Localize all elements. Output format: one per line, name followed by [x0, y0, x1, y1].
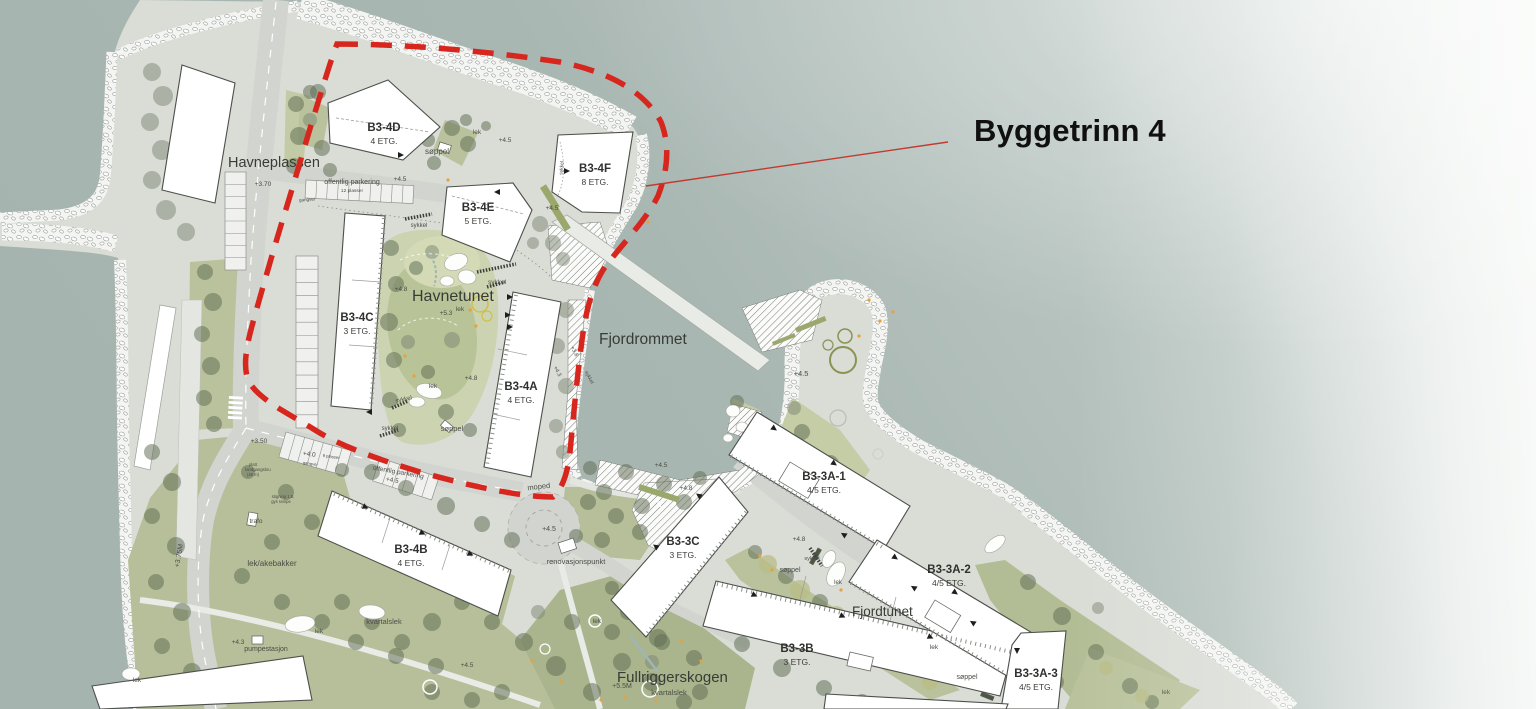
site-plan: offentlig parkering12 plasser+4.5gangvei…: [0, 0, 1536, 709]
page-title: Byggetrinn 4: [974, 113, 1166, 148]
fade-overlay-topright: [0, 0, 1536, 709]
